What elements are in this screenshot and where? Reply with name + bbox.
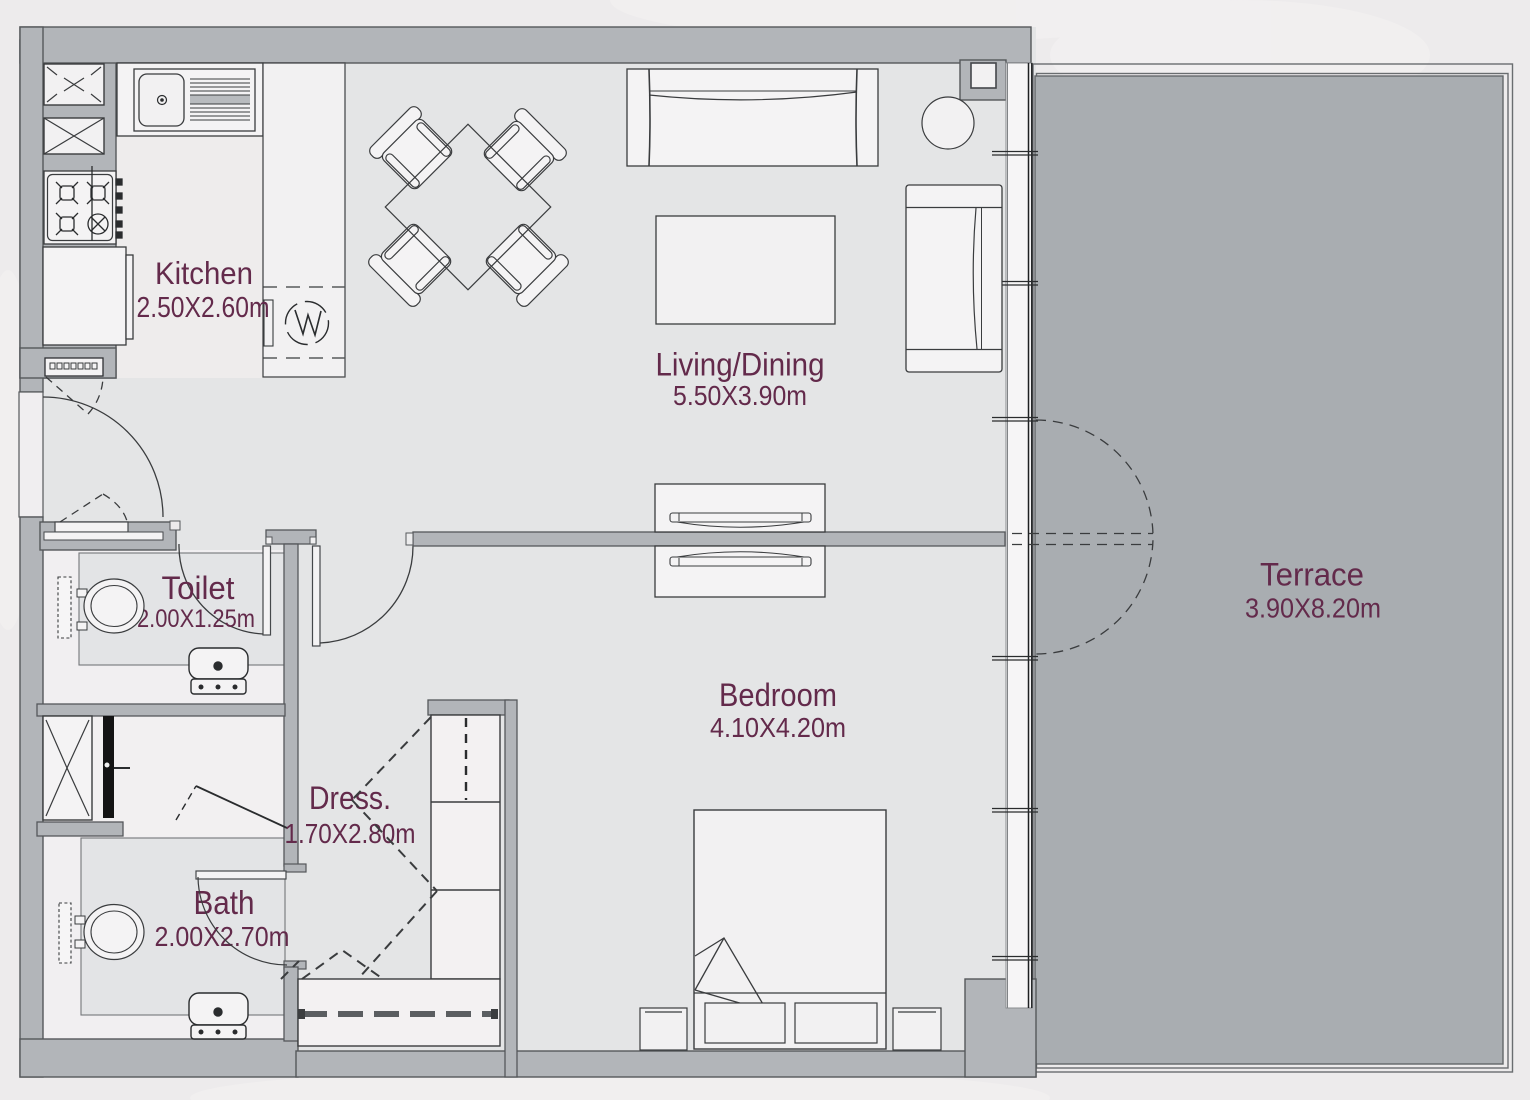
svg-text:Bedroom: Bedroom (719, 677, 837, 713)
svg-text:2.50X2.60m: 2.50X2.60m (137, 292, 270, 324)
svg-text:Dress.: Dress. (309, 780, 391, 816)
svg-text:4.10X4.20m: 4.10X4.20m (710, 712, 846, 743)
svg-text:5.50X3.90m: 5.50X3.90m (673, 380, 807, 411)
svg-text:Kitchen: Kitchen (155, 255, 253, 291)
svg-text:Toilet: Toilet (162, 570, 235, 606)
svg-text:Living/Dining: Living/Dining (656, 347, 825, 383)
svg-text:1.70X2.80m: 1.70X2.80m (285, 818, 416, 849)
svg-text:2.00X1.25m: 2.00X1.25m (137, 605, 255, 633)
svg-text:Terrace: Terrace (1260, 557, 1364, 593)
svg-text:3.90X8.20m: 3.90X8.20m (1245, 593, 1381, 624)
